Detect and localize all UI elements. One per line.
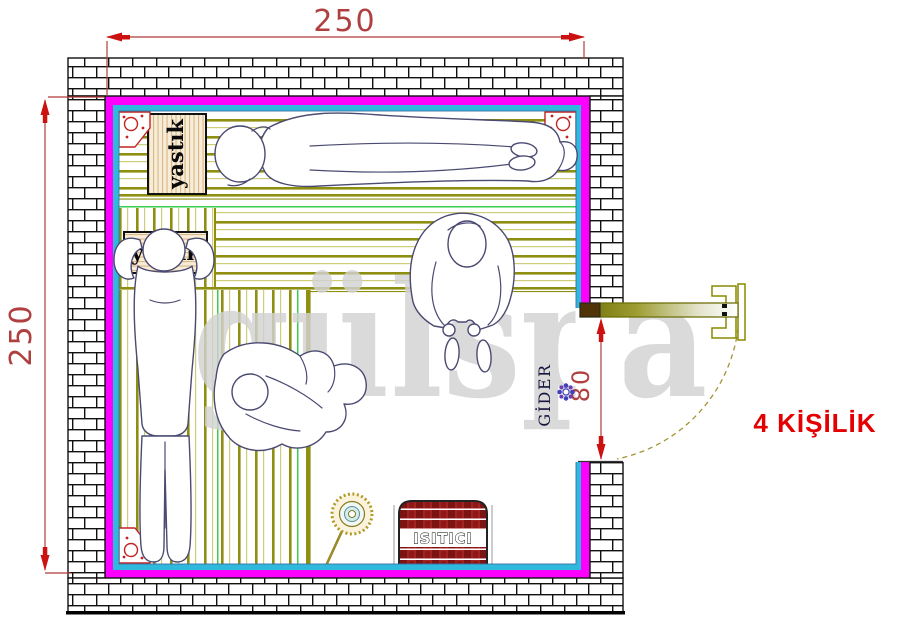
wall-right-upper (590, 96, 623, 310)
wall-top (68, 58, 623, 96)
drain-label: GİDER (534, 363, 554, 426)
heater: ISITICI (394, 501, 492, 568)
capacity-label: 4 KİŞİLİK (753, 408, 876, 438)
wall-bottom (68, 578, 623, 613)
bench-accent-line (119, 206, 576, 208)
pillow-top-label: yastık (163, 119, 188, 190)
sauna-floor-plan: yastık yastık ISITICI gül (0, 0, 900, 640)
wall-bottom-edge (66, 611, 625, 615)
heater-label: ISITICI (413, 532, 473, 548)
wall-right-lower (590, 462, 623, 578)
door-leaf (580, 303, 738, 317)
pillow-top: yastık (148, 114, 206, 194)
dim-top-label: 250 (313, 4, 376, 39)
wall-left (68, 96, 105, 578)
dim-left-label: 250 (4, 303, 39, 366)
sauna-floor-plan-canvas: yastık yastık ISITICI gül (0, 0, 900, 640)
